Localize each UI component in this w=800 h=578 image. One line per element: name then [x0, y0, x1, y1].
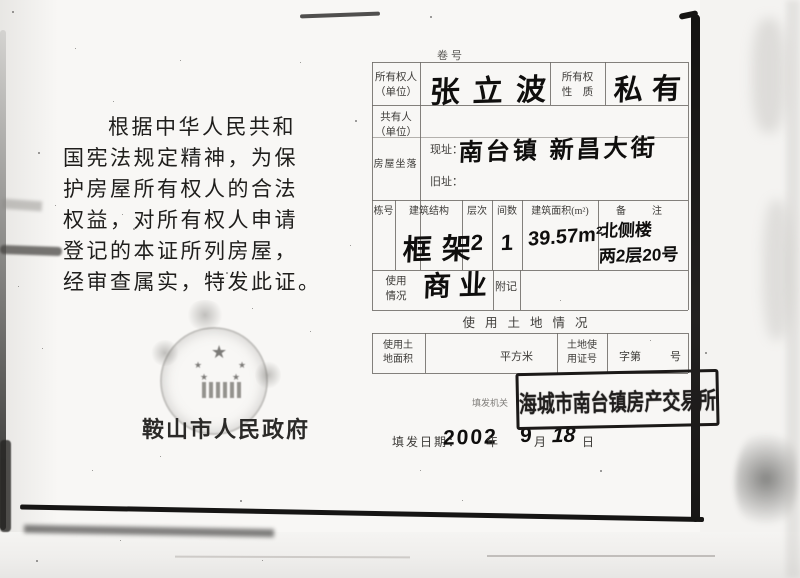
speckle-dot: [240, 500, 242, 502]
column-header-rooms: 间数: [492, 205, 522, 219]
volume-number-label: 卷号: [437, 47, 465, 63]
seal-ink-blotch: [255, 360, 281, 390]
usage-status-value: 商业: [422, 263, 496, 305]
usage-label-line: 使用: [373, 274, 419, 289]
scan-fold-edge-hook: [679, 10, 699, 20]
speckle-dot: [113, 101, 114, 102]
seal-ink-blotch: [150, 340, 180, 366]
owner-label-line: （单位）: [373, 85, 419, 100]
speckle-dot: [350, 245, 351, 246]
real-estate-exchange-stamp: 海城市南台镇房产交易所: [515, 369, 719, 430]
speckle-dot: [180, 60, 181, 61]
scan-page-edge-bottom: [20, 504, 704, 522]
scanned-certificate-page: 根据中华人民共和 国宪法规定精神，为保 护房屋所有权人的合法 权益，对所有权人申…: [0, 0, 800, 578]
ownership-nature-label: 所有权 性 质: [551, 70, 604, 100]
co-owner-field-label: 共有人 （单位）: [373, 110, 419, 140]
issuing-government-name: 鞍山市人民政府: [142, 412, 310, 444]
paragraph-line: 护房屋所有权人的合法: [63, 174, 325, 205]
owner-label-line: 所有权人: [373, 70, 419, 85]
current-address-value: 南台镇 新昌大街: [458, 127, 658, 167]
speckle-dot: [420, 470, 421, 471]
speckle-dot: [310, 331, 311, 332]
speckle-dot: [75, 48, 76, 49]
annex-note-label: 附记: [495, 278, 517, 294]
column-header-floor-area: 建筑面积(m²): [522, 205, 598, 219]
emblem-star-icon: ★: [211, 342, 227, 363]
paragraph-line: 根据中华人民共和: [63, 112, 325, 143]
speckle-dot: [650, 340, 651, 341]
certificate-declaration-paragraph: 根据中华人民共和 国宪法规定精神，为保 护房屋所有权人的合法 权益，对所有权人申…: [63, 112, 325, 298]
national-emblem-icon: ★ ★ ★ ★ ★: [192, 348, 254, 408]
issue-date-month-unit: 月: [534, 433, 546, 450]
remarks-value-line1: 北侧楼: [600, 215, 652, 241]
speckle-dot: [300, 62, 301, 63]
table-border-line: [605, 62, 606, 105]
table-border-line: [607, 333, 608, 373]
land-cert-suffix: 号: [670, 348, 681, 364]
stamp-text: 海城市南台镇房产交易所: [518, 380, 716, 418]
land-area-label: 使用土 地面积: [373, 339, 423, 367]
owner-field-label: 所有权人 （单位）: [373, 70, 419, 100]
old-address-label: 旧址：: [430, 173, 463, 189]
emblem-star-icon: ★: [238, 360, 246, 371]
floor-area-value: 39.57m²: [528, 223, 603, 251]
ownership-nature-value: 私有: [613, 65, 691, 109]
emblem-gate-icon: [202, 382, 242, 398]
speckle-dot: [160, 456, 161, 457]
land-area-unit-label: 平方米: [500, 348, 533, 364]
page-left-shading: [0, 0, 58, 578]
table-border-line: [425, 333, 426, 373]
table-border-line: [520, 270, 521, 310]
ownership-label-line: 所有权: [551, 70, 604, 85]
table-border-line: [688, 333, 689, 373]
table-border-line: [372, 310, 688, 311]
land-area-label-line: 地面积: [373, 353, 423, 367]
land-cert-prefix: 字第: [619, 348, 641, 364]
speckle-dot: [355, 120, 357, 122]
scan-fold-edge-right: [691, 14, 700, 522]
house-location-label: 房屋坐落: [372, 158, 419, 172]
speckle-dot: [252, 308, 253, 309]
paragraph-line: 经审查属实，特发此证。: [63, 267, 325, 298]
paragraph-line: 登记的本证所列房屋，: [63, 236, 325, 267]
usage-status-label: 使用 情况: [373, 274, 419, 304]
issue-date-year-unit: 年: [486, 433, 498, 450]
speckle-dot: [92, 470, 93, 471]
land-cert-label-line: 用证号: [558, 353, 606, 367]
land-cert-number-label: 土地使 用证号: [558, 339, 606, 367]
column-header-floors: 层次: [462, 205, 492, 219]
seal-ink-blotch: [185, 300, 225, 330]
table-border-line: [395, 200, 396, 270]
issue-date-day-unit: 日: [582, 433, 594, 450]
usage-label-line: 情况: [373, 289, 419, 304]
table-border-line: [372, 333, 688, 334]
page-bottom-margin: [0, 532, 800, 578]
page-right-margin: [700, 0, 800, 578]
land-cert-label-line: 土地使: [558, 339, 606, 353]
paragraph-line: 权益，对所有权人申请: [63, 205, 325, 236]
land-area-label-line: 使用土: [373, 339, 423, 353]
column-header-building-no: 栋号: [372, 205, 395, 219]
co-owner-label-line: （单位）: [373, 125, 419, 140]
speckle-dot: [600, 470, 602, 472]
speckle-dot: [560, 300, 561, 301]
co-owner-label-line: 共有人: [373, 110, 419, 125]
floors-value: 2: [461, 230, 492, 257]
table-border-line: [372, 270, 688, 271]
scan-top-mark: [300, 12, 380, 19]
issuing-organ-label: 填发机关: [472, 396, 508, 409]
paragraph-line: 国宪法规定精神，为保: [63, 143, 325, 174]
column-header-structure: 建筑结构: [397, 205, 461, 219]
speckle-dot: [462, 500, 463, 501]
speckle-dot: [430, 16, 432, 18]
land-use-section-title: 使用土地情况: [372, 312, 688, 331]
emblem-star-icon: ★: [194, 360, 202, 371]
rooms-value: 1: [491, 230, 522, 257]
owner-name-value: 张立波: [429, 64, 560, 111]
ownership-label-line: 性 质: [551, 85, 604, 100]
remarks-value-line2: 两2层20号: [598, 240, 679, 267]
